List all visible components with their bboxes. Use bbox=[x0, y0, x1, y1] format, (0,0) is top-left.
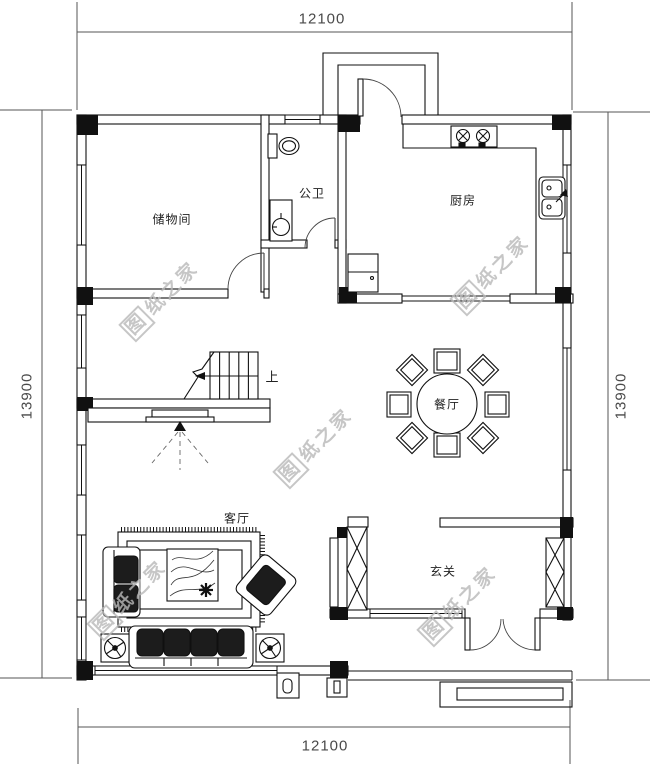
chair-nw bbox=[396, 354, 427, 385]
stairs-up-label: 上 bbox=[265, 367, 278, 386]
porch-column-base-right bbox=[327, 678, 347, 697]
chair-ne bbox=[467, 354, 498, 385]
kitchen-sink bbox=[539, 177, 568, 219]
counter bbox=[403, 124, 536, 294]
back-door-swing bbox=[363, 79, 401, 117]
entry-door-swing-right bbox=[503, 619, 535, 650]
room-label-dining: 餐厅 bbox=[434, 396, 460, 413]
back-porch bbox=[323, 53, 438, 117]
room-label-kitchen: 厨房 bbox=[450, 192, 476, 209]
sofa-bottom bbox=[129, 626, 253, 668]
bathroom-sink bbox=[270, 200, 292, 241]
dimension-left: 13900 bbox=[19, 373, 36, 420]
room-label-living: 客厅 bbox=[224, 510, 250, 527]
kitchen-fixtures bbox=[348, 124, 568, 294]
entry-door-swing-left bbox=[470, 619, 501, 650]
foyer-column-left bbox=[347, 527, 367, 610]
toilet bbox=[268, 134, 299, 158]
room-label-bathroom: 公卫 bbox=[299, 185, 325, 202]
porch-column-base-left bbox=[277, 673, 299, 698]
floorplan-canvas: 储物间 公卫 厨房 餐厅 客厅 玄关 上 12100 12100 13900 1… bbox=[0, 0, 650, 766]
porch-edge bbox=[348, 671, 572, 680]
tv-cabinet bbox=[88, 408, 270, 470]
floorplan-drawing bbox=[0, 0, 650, 766]
fridge bbox=[348, 254, 378, 292]
chair-sw bbox=[396, 422, 427, 453]
bathroom-fixtures bbox=[268, 134, 299, 241]
armchair bbox=[234, 552, 299, 617]
coffee-table bbox=[167, 549, 218, 601]
plant-table-right bbox=[256, 634, 284, 662]
dimension-top: 12100 bbox=[299, 11, 346, 28]
chair-se bbox=[467, 422, 498, 453]
room-label-foyer: 玄关 bbox=[430, 563, 456, 580]
stove bbox=[451, 126, 497, 147]
room-label-storage: 储物间 bbox=[152, 211, 191, 228]
entry-steps bbox=[440, 682, 572, 707]
stairs bbox=[184, 352, 258, 399]
bathroom-door-swing bbox=[305, 218, 335, 248]
foyer-column-right bbox=[546, 538, 564, 607]
dimension-right: 13900 bbox=[613, 373, 630, 420]
table-flower bbox=[199, 583, 213, 597]
tv-sightlines bbox=[152, 432, 208, 470]
storage-door-swing bbox=[228, 253, 264, 289]
dimension-bottom: 12100 bbox=[302, 738, 349, 755]
